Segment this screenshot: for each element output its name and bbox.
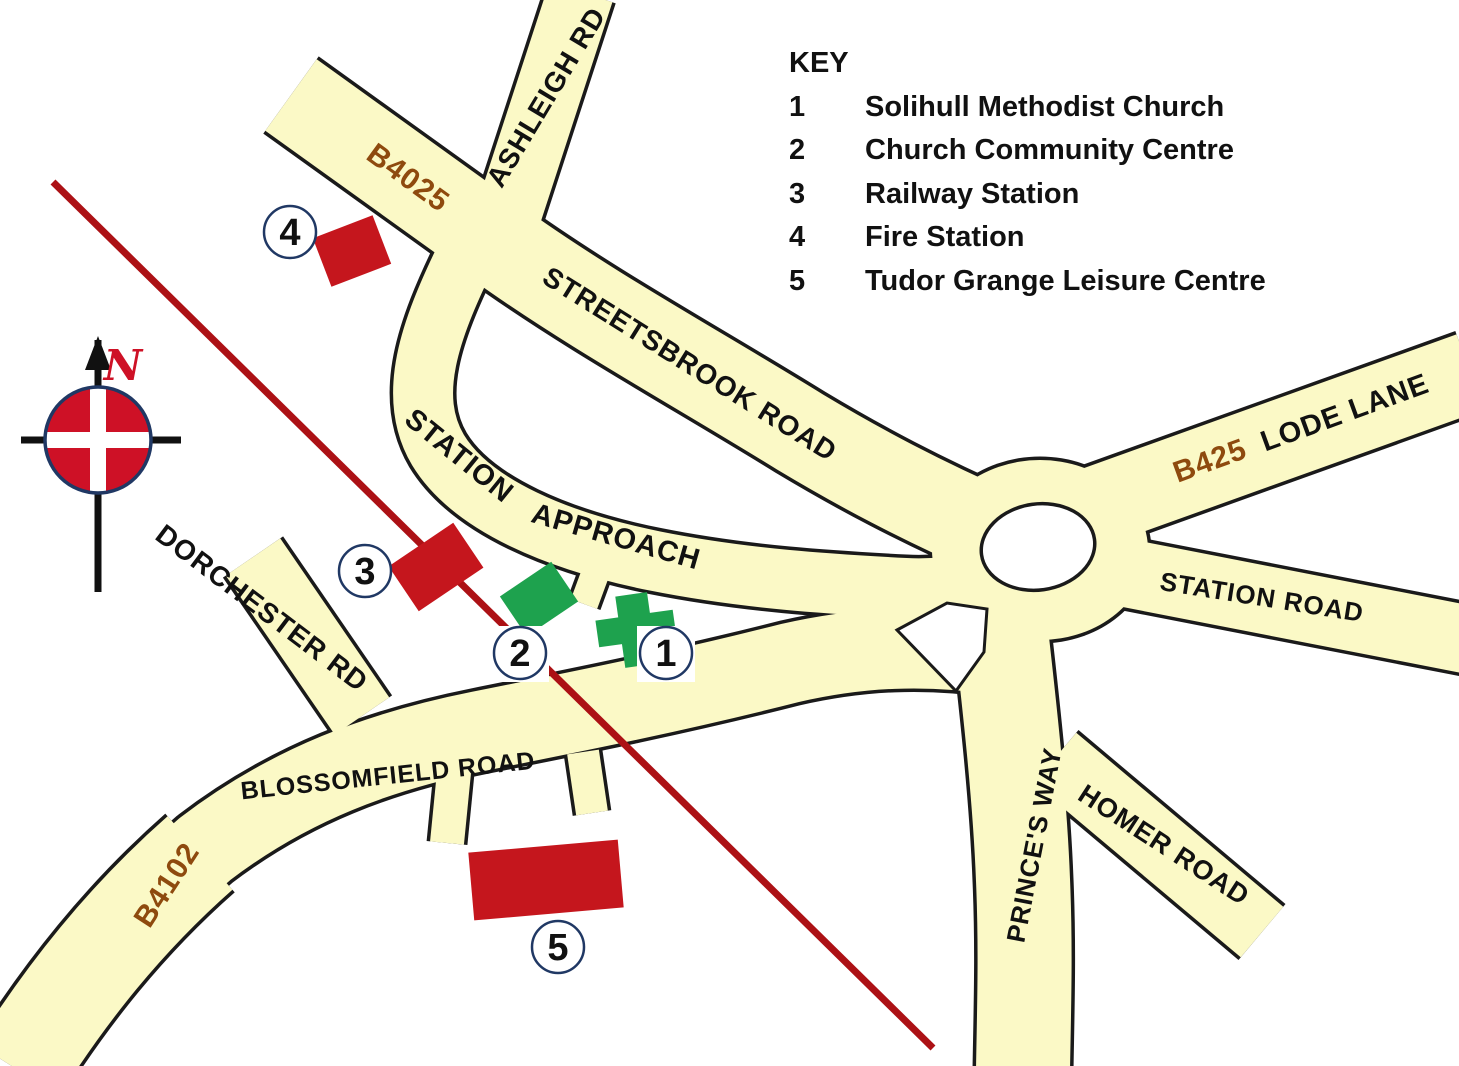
- map-key: KEY 1 Solihull Methodist Church 2 Church…: [789, 42, 1266, 303]
- key-row: 2 Church Community Centre: [789, 129, 1266, 173]
- building-leisure-centre: [468, 840, 623, 921]
- marker-3-number: 3: [354, 551, 375, 593]
- marker-1-number: 1: [655, 633, 676, 675]
- map-page: B4025 ASHLEIGH RD STREETSBROOK ROAD STAT…: [0, 0, 1459, 1066]
- key-item-label: Solihull Methodist Church: [865, 86, 1224, 130]
- key-item-label: Church Community Centre: [865, 129, 1234, 173]
- compass-north-label: N: [102, 341, 144, 390]
- key-item-label: Tudor Grange Leisure Centre: [865, 260, 1266, 304]
- marker-methodist-church: 1: [637, 626, 695, 682]
- marker-5-number: 5: [547, 927, 568, 969]
- key-row: 5 Tudor Grange Leisure Centre: [789, 260, 1266, 304]
- key-item-number: 2: [789, 129, 865, 173]
- key-row: 1 Solihull Methodist Church: [789, 86, 1266, 130]
- marker-4-number: 4: [279, 212, 300, 254]
- key-item-label: Fire Station: [865, 216, 1025, 260]
- label-dorchester-rd: DORCHESTER RD: [150, 518, 374, 698]
- marker-2-number: 2: [509, 633, 530, 675]
- key-item-number: 1: [789, 86, 865, 130]
- building-fire-station: [313, 215, 391, 286]
- compass-rose: N: [21, 336, 181, 592]
- key-item-number: 5: [789, 260, 865, 304]
- key-item-label: Railway Station: [865, 173, 1079, 217]
- key-row: 3 Railway Station: [789, 173, 1266, 217]
- road-stub-blossomfield-2: [583, 752, 592, 813]
- compass-cross-horizontal: [46, 432, 150, 448]
- building-railway-station: [389, 523, 484, 611]
- key-row: 4 Fire Station: [789, 216, 1266, 260]
- road-stub-station-approach: [584, 566, 598, 604]
- key-item-number: 4: [789, 216, 865, 260]
- key-title: KEY: [789, 42, 1266, 86]
- key-item-number: 3: [789, 173, 865, 217]
- marker-railway-station: 3: [339, 545, 391, 597]
- marker-fire-station: 4: [264, 206, 316, 258]
- marker-leisure-centre: 5: [532, 921, 584, 973]
- marker-community-centre: 2: [491, 626, 549, 682]
- building-community-centre: [500, 562, 578, 636]
